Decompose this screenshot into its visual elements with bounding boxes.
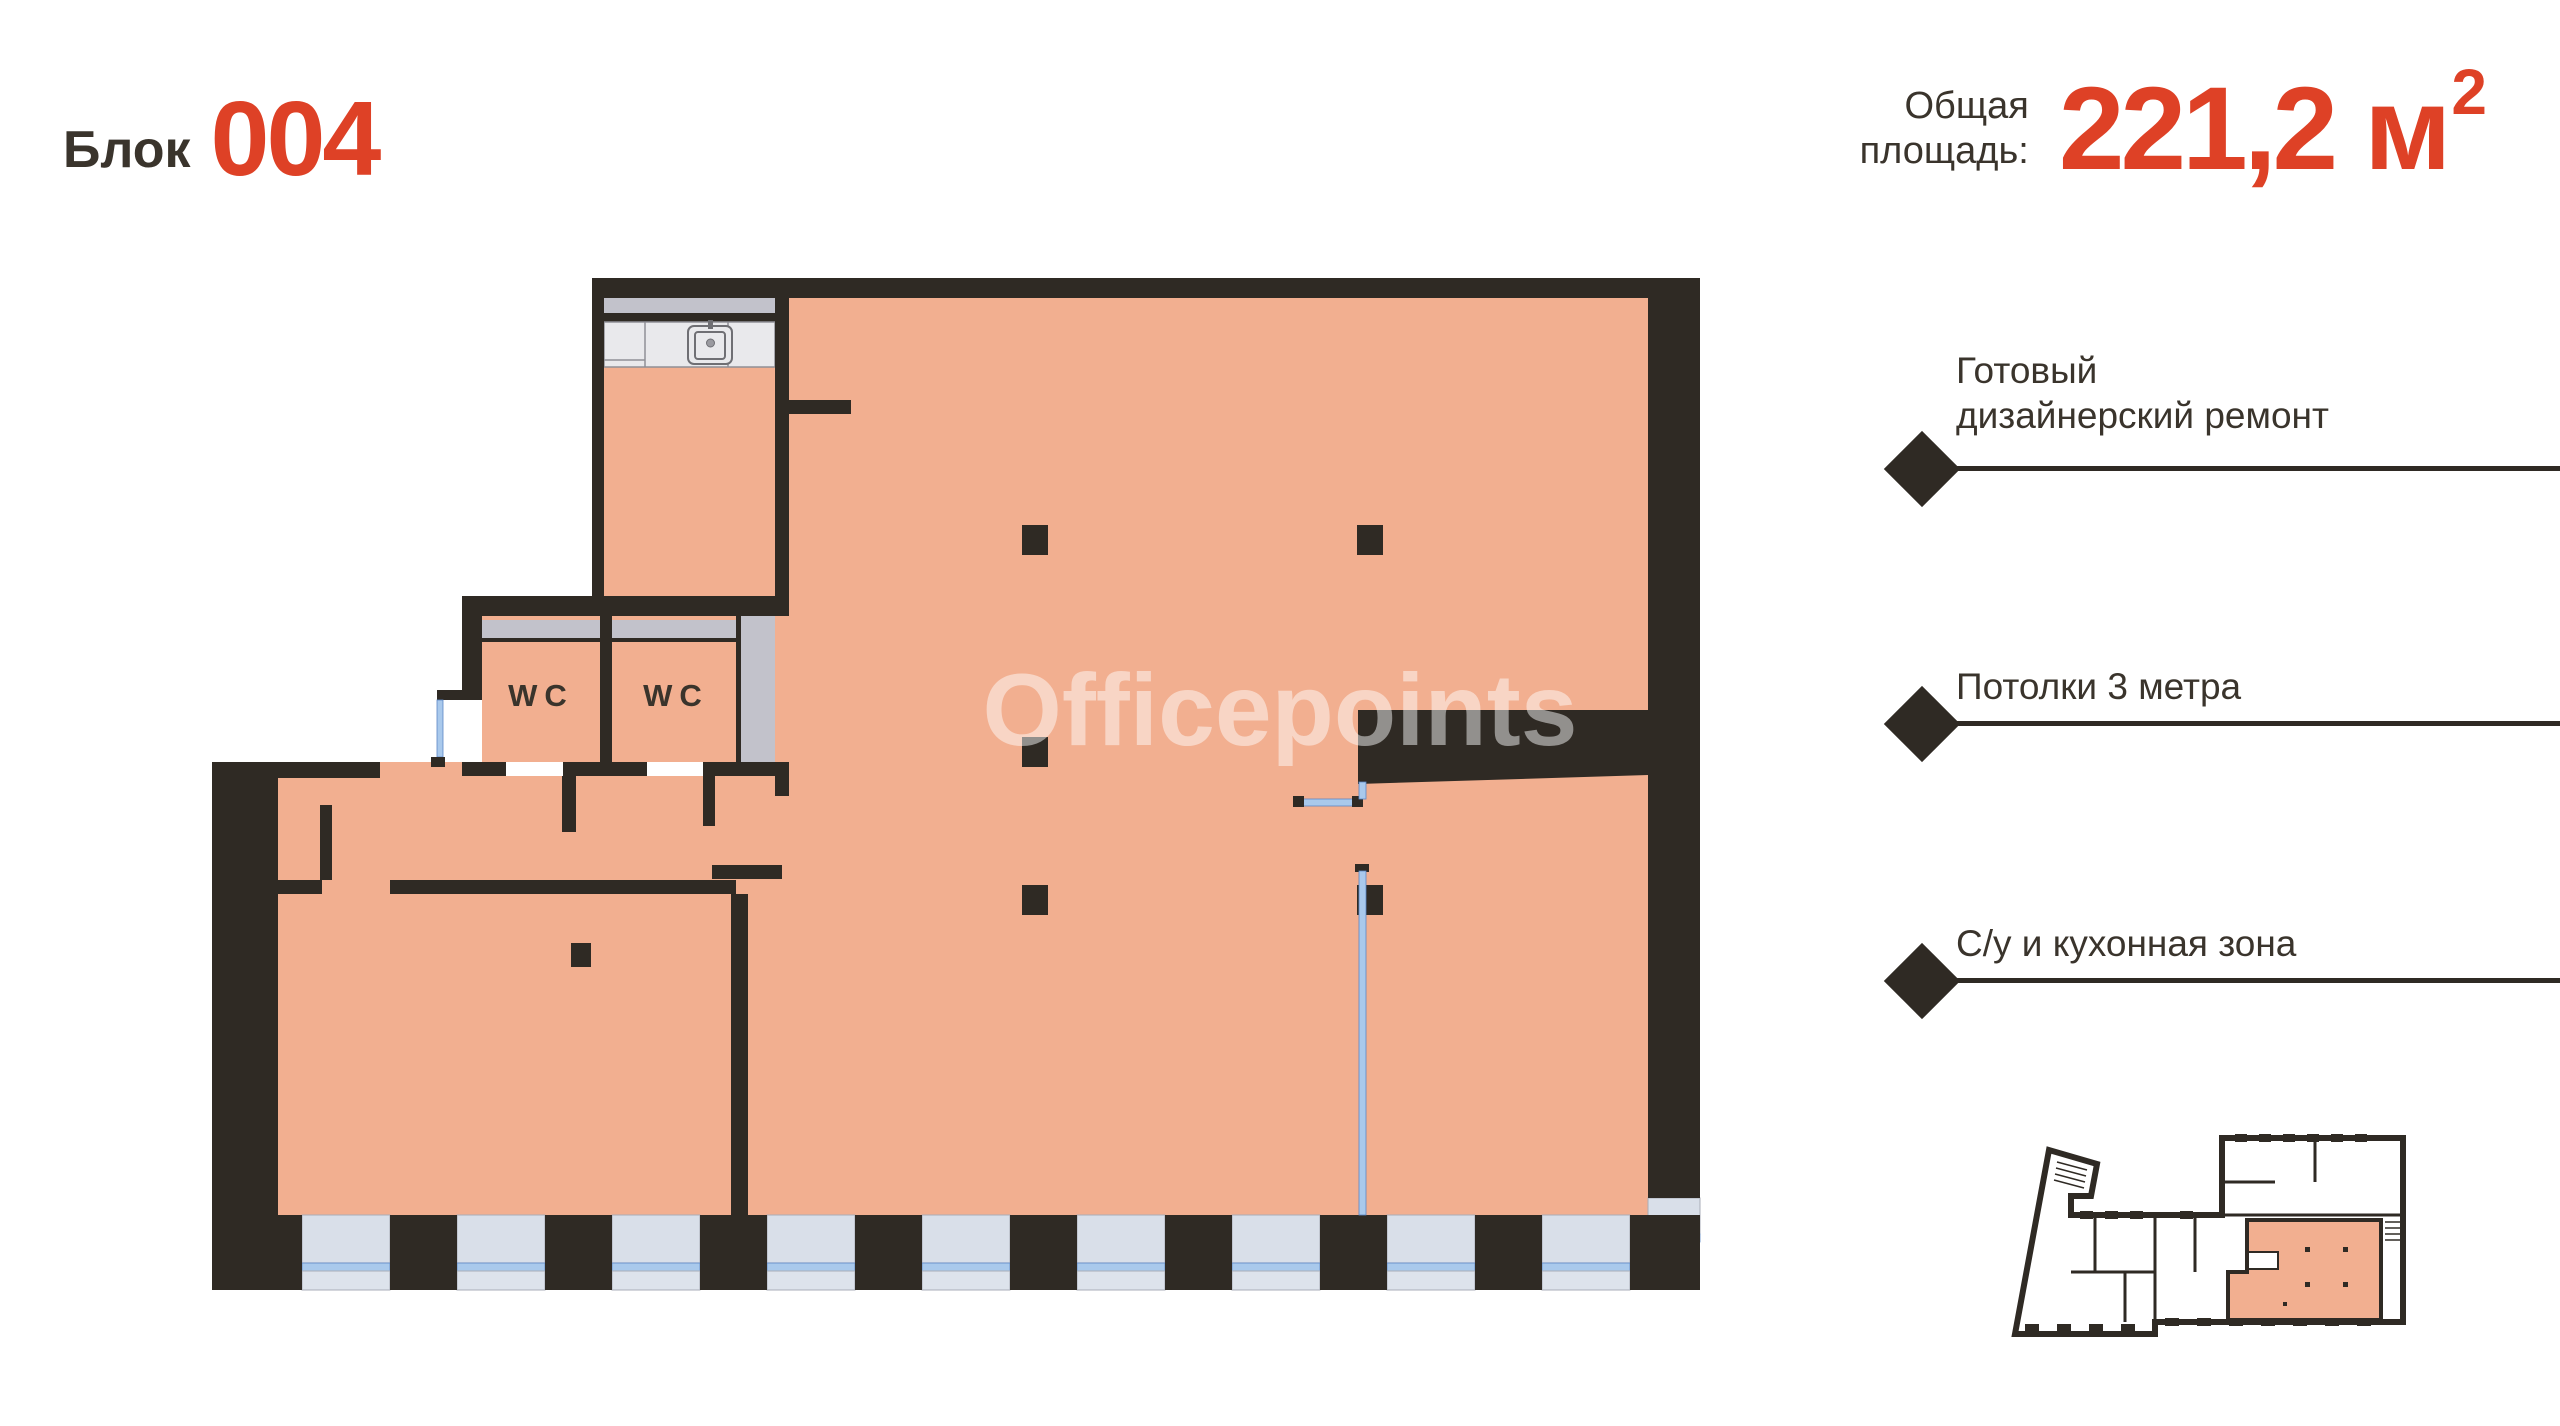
column <box>1357 525 1383 555</box>
minimap-highlighted-block <box>2228 1220 2381 1320</box>
kitchen-sink-icon <box>688 320 732 364</box>
column <box>1022 885 1048 915</box>
entry-glass-door <box>437 700 443 757</box>
floor-plan: WC WC Officepoints <box>0 0 2560 1426</box>
building-minimap <box>2015 1134 2403 1334</box>
watermark: Officepoints <box>982 653 1577 767</box>
page: Блок 004 Общая площадь: 221,2 м 2 Готовы… <box>0 0 2560 1426</box>
column <box>1022 525 1048 555</box>
glass-partition <box>1359 871 1366 1215</box>
kitchen-zone <box>604 298 775 367</box>
wc2-label: WC <box>643 678 709 713</box>
wc1-label: WC <box>508 678 574 713</box>
column <box>571 943 591 967</box>
